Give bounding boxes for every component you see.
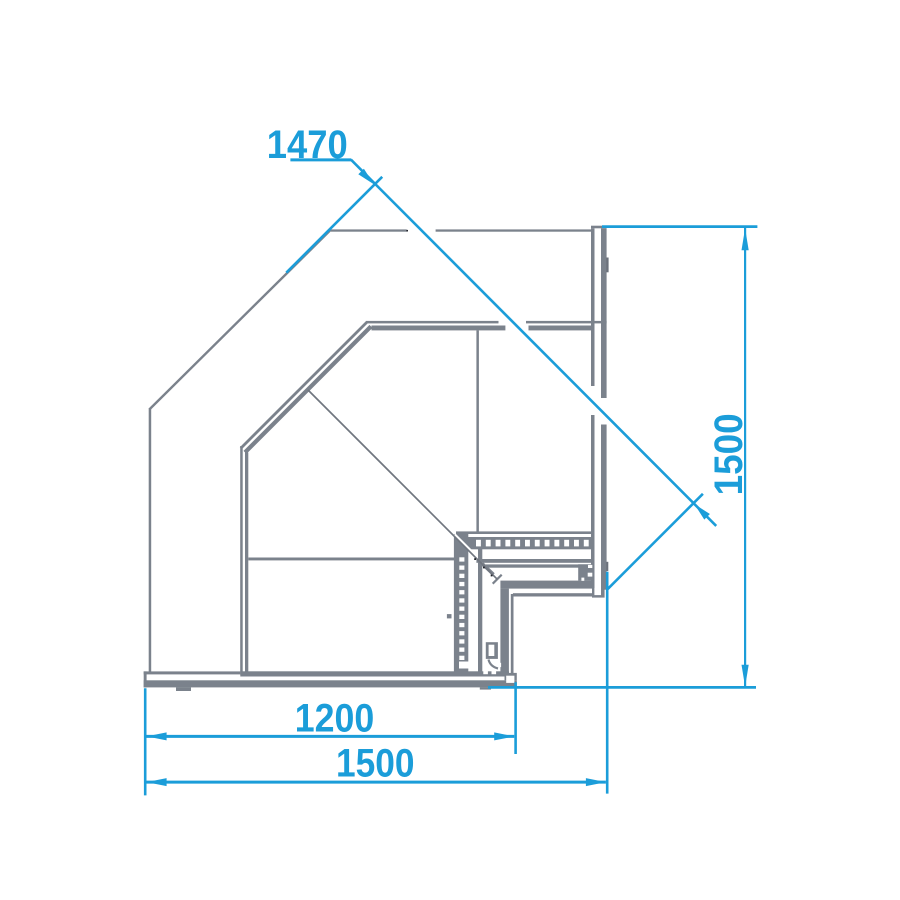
svg-text:1200: 1200 <box>295 697 375 741</box>
svg-text:1470: 1470 <box>267 123 348 167</box>
svg-text:1500: 1500 <box>707 413 751 495</box>
svg-text:1500: 1500 <box>336 742 415 786</box>
